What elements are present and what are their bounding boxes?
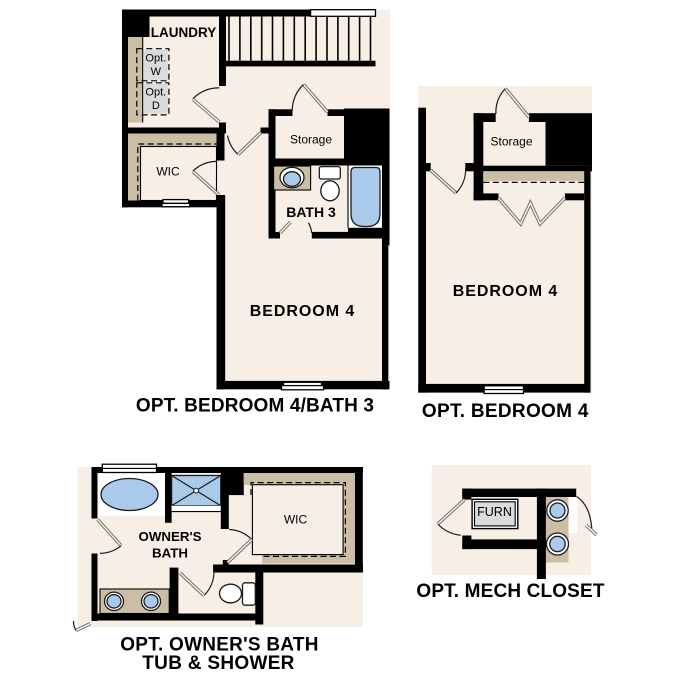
- svg-text:WIC: WIC: [156, 165, 180, 179]
- svg-text:OPT. BEDROOM 4: OPT. BEDROOM 4: [422, 401, 589, 422]
- svg-text:D: D: [152, 100, 160, 112]
- svg-text:BEDROOM 4: BEDROOM 4: [453, 283, 558, 300]
- svg-text:OPT. BEDROOM 4/BATH 3: OPT. BEDROOM 4/BATH 3: [136, 396, 374, 417]
- svg-text:BEDROOM 4: BEDROOM 4: [250, 303, 355, 320]
- svg-text:OWNER'S: OWNER'S: [139, 529, 202, 544]
- svg-text:Opt.: Opt.: [145, 53, 166, 65]
- svg-text:WIC: WIC: [284, 513, 308, 527]
- svg-text:W: W: [151, 66, 162, 78]
- svg-text:LAUNDRY: LAUNDRY: [151, 25, 217, 40]
- svg-text:BATH 3: BATH 3: [286, 204, 336, 220]
- svg-text:BATH: BATH: [152, 546, 188, 561]
- svg-text:Storage: Storage: [490, 135, 532, 149]
- svg-text:OPT. MECH CLOSET: OPT. MECH CLOSET: [416, 581, 604, 602]
- svg-text:Storage: Storage: [290, 133, 332, 147]
- svg-text:Opt.: Opt.: [145, 87, 166, 99]
- svg-text:TUB & SHOWER: TUB & SHOWER: [142, 653, 294, 674]
- svg-text:FURN: FURN: [477, 505, 512, 519]
